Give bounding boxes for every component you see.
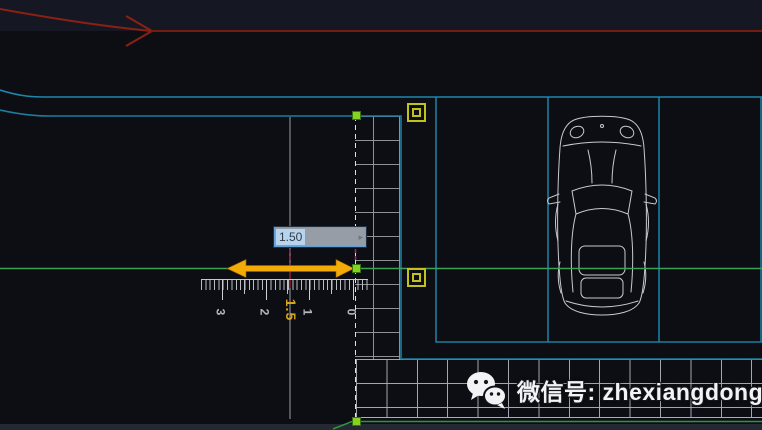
dimension-text: 1.5: [283, 299, 299, 321]
ruler-major-tick: [266, 280, 267, 300]
watermark: 微信号: zhexiangdonghua: [466, 370, 762, 410]
square-marker-inner: [412, 108, 421, 117]
car-block[interactable]: [548, 116, 657, 315]
ruler-mid-tick: [287, 280, 288, 294]
square-marker-middle[interactable]: [407, 268, 426, 287]
dynamic-input-value[interactable]: 1.50: [276, 229, 305, 245]
dynamic-input-box[interactable]: 1.50 ▸: [274, 227, 366, 247]
grip-middle[interactable]: [352, 264, 361, 273]
ruler-mid-tick: [244, 280, 245, 294]
ruler-major-tick: [222, 280, 223, 300]
grip-bottom[interactable]: [352, 417, 361, 426]
ruler-label-2: 2: [257, 309, 271, 316]
parking-bay-lines[interactable]: [436, 97, 762, 342]
cad-viewport: 3 2 1 0 1.5 1.50 ▸: [0, 0, 762, 430]
ruler-major-tick: [309, 280, 310, 300]
square-marker-inner: [412, 273, 421, 282]
watermark-text: 微信号: zhexiangdonghua: [517, 373, 762, 407]
road-edge-lines[interactable]: [0, 90, 762, 359]
drawing-linework: [0, 0, 762, 430]
ruler-label-0: 0: [344, 309, 358, 316]
ruler-label-1: 1: [300, 309, 314, 316]
ruler-major-tick: [353, 280, 354, 300]
input-arrow-icon: ▸: [358, 233, 363, 242]
grip-top[interactable]: [352, 111, 361, 120]
red-direction-arrow[interactable]: [0, 9, 762, 46]
ruler-minor-ticks: [201, 280, 368, 290]
ruler-mid-tick: [331, 280, 332, 294]
ruler-label-3: 3: [213, 309, 227, 316]
square-marker-top[interactable]: [407, 103, 426, 122]
wechat-icon: [466, 370, 508, 410]
green-bottom-line[interactable]: [333, 422, 762, 430]
